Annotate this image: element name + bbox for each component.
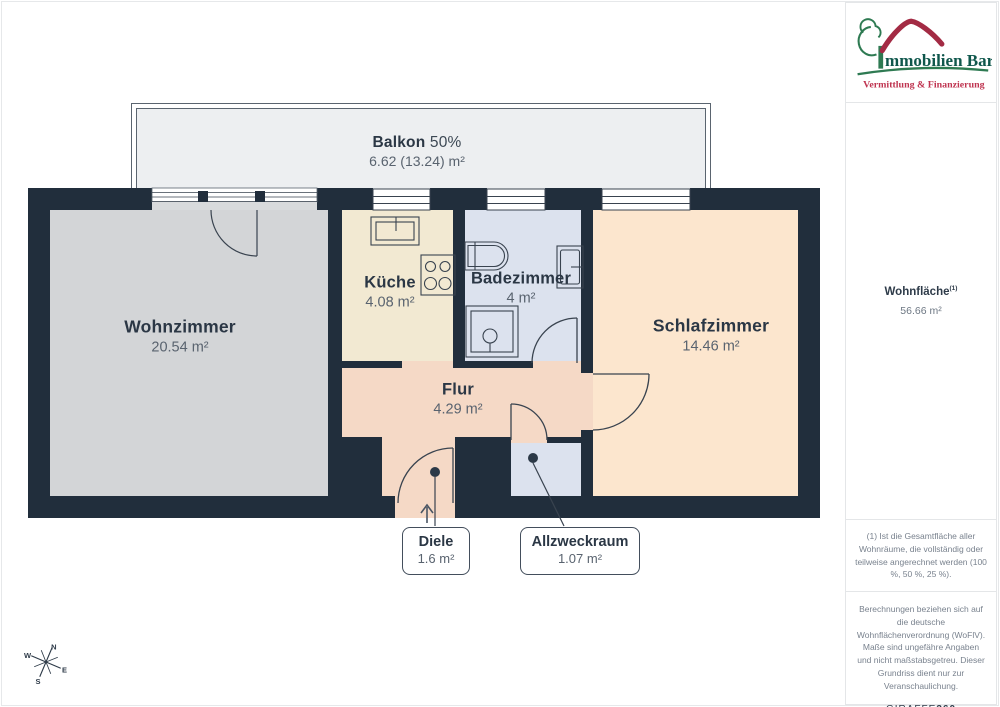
badezimmer-label: Badezimmer 4 m² [471,268,571,307]
logo-underline [858,67,989,73]
flur-label: Flur 4.29 m² [433,379,482,418]
wohnzimmer-area: 20.54 m² [124,339,236,358]
floor-plan: N E S W Balkon 50% 6.62 (13.24) m² Wohnz… [0,0,840,707]
balkon-name: Balkon [372,134,425,151]
kueche-name: Küche [364,272,415,293]
balcony-door [152,188,317,256]
living-area-footnote-ref: (1) [950,285,958,292]
allzweckraum-name: Allzweckraum [532,534,629,551]
logo-roof-icon [882,21,942,50]
schlafzimmer-label: Schlafzimmer 14.46 m² [653,316,769,357]
entrance-arrow-icon [421,505,433,523]
diele-area: 1.6 m² [418,551,455,568]
balkon-share: 50% [430,134,462,151]
schlafzimmer-area: 14.46 m² [653,338,769,357]
allzweckraum-door [511,404,547,440]
allzweckraum-callout: Allzweckraum 1.07 m² [520,527,640,575]
compass-s: S [35,677,40,686]
diele-callout-line [430,467,440,526]
flur-name: Flur [433,379,482,400]
living-area-summary: Wohnfläche(1) 56.66 m² [846,285,996,317]
footnote-1-box: (1) Ist die Gesamtfläche aller Wohnräume… [845,519,997,592]
bathtub-icon [465,242,508,270]
company-logo: mmobilien Bart Vermittlung & Finanzierun… [850,7,992,99]
entrance-door [398,448,453,503]
floor-plan-page: N E S W Balkon 50% 6.62 (13.24) m² Wohnz… [0,0,1000,707]
schlafzimmer-name: Schlafzimmer [653,316,769,338]
living-area-value: 56.66 m² [846,305,996,317]
window-kueche [373,189,430,210]
balkon-label: Balkon 50% 6.62 (13.24) m² [369,133,465,171]
stove-icon [421,255,455,295]
window-schlafzimmer [602,189,690,210]
flur-area: 4.29 m² [433,400,482,419]
wohnzimmer-label: Wohnzimmer 20.54 m² [124,317,236,358]
footnote-2-box: Berechnungen beziehen sich auf die deuts… [845,591,997,705]
allzweckraum-callout-line [528,453,564,526]
footnote-2: Berechnungen beziehen sich auf die deuts… [855,603,987,692]
kitchen-sink-icon [371,217,419,245]
shower-icon [466,306,518,357]
schlafzimmer-door [593,374,649,430]
footnote-1: (1) Ist die Gesamtfläche aller Wohnräume… [855,530,987,581]
compass-rose-icon: N E S W [24,641,67,686]
diele-name: Diele [419,534,454,551]
badezimmer-name: Badezimmer [471,268,571,289]
window-badezimmer [487,189,545,210]
kueche-label: Küche 4.08 m² [364,272,415,311]
diele-callout: Diele 1.6 m² [402,527,470,575]
kueche-area: 4.08 m² [364,293,415,312]
logo-box: mmobilien Bart Vermittlung & Finanzierun… [845,2,997,103]
living-area-box: Wohnfläche(1) 56.66 m² [845,102,997,520]
badezimmer-door [532,318,577,363]
compass-e: E [62,666,67,675]
balkon-area: 6.62 (13.24) m² [369,153,465,171]
logo-subtitle: Vermittlung & Finanzierung [863,79,984,90]
compass-n: N [51,643,56,652]
allzweckraum-area: 1.07 m² [558,551,602,568]
badezimmer-area: 4 m² [471,289,571,308]
compass-w: W [24,651,32,660]
wohnzimmer-name: Wohnzimmer [124,317,236,339]
living-area-label: Wohnfläche(1) [846,285,996,298]
